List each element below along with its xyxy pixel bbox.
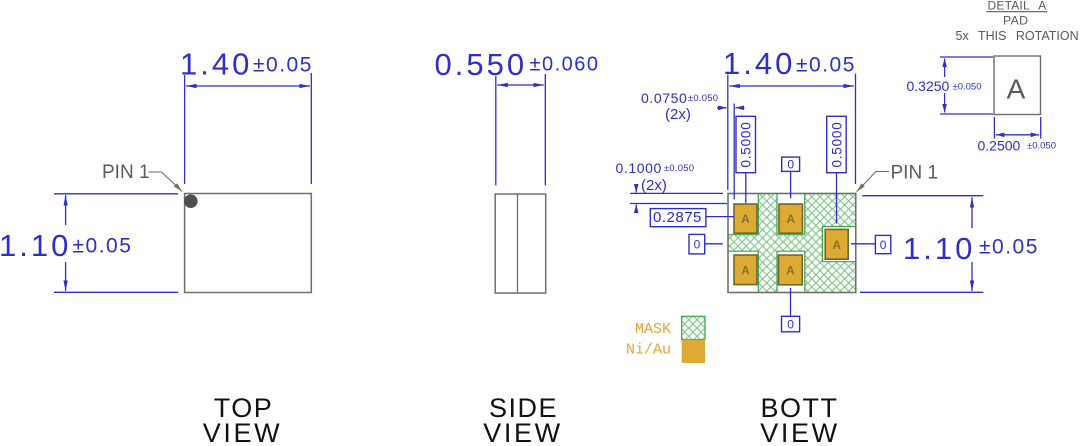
- svg-text:0.3250: 0.3250: [907, 78, 950, 94]
- svg-text:±0.05: ±0.05: [73, 235, 133, 258]
- svg-text:0.2500: 0.2500: [978, 138, 1021, 154]
- svg-text:PIN 1: PIN 1: [891, 163, 939, 184]
- svg-text:PAD: PAD: [1003, 13, 1028, 27]
- svg-text:0: 0: [787, 317, 794, 331]
- svg-text:A: A: [786, 264, 795, 278]
- svg-text:0.5000: 0.5000: [739, 121, 754, 167]
- svg-text:1.10: 1.10: [903, 231, 975, 266]
- svg-text:±0.05: ±0.05: [796, 54, 856, 77]
- svg-text:1.40: 1.40: [723, 46, 795, 81]
- svg-text:MASK: MASK: [635, 321, 671, 338]
- svg-text:5x THIS ROTATION: 5x THIS ROTATION: [956, 29, 1079, 43]
- svg-text:±0.050: ±0.050: [1027, 141, 1056, 152]
- svg-text:Ni/Au: Ni/Au: [626, 342, 671, 359]
- svg-text:0.5000: 0.5000: [829, 121, 844, 167]
- svg-text:A: A: [786, 212, 795, 226]
- svg-text:0: 0: [694, 238, 701, 252]
- svg-text:(2x): (2x): [665, 106, 691, 123]
- svg-text:±0.05: ±0.05: [979, 236, 1039, 259]
- svg-text:0: 0: [787, 158, 794, 172]
- svg-text:0.1000: 0.1000: [616, 160, 662, 176]
- svg-text:0.2875: 0.2875: [653, 209, 702, 226]
- svg-text:0.0750: 0.0750: [641, 90, 687, 106]
- svg-text:1.10: 1.10: [0, 228, 71, 263]
- svg-text:0.550: 0.550: [435, 47, 528, 82]
- svg-text:±0.05: ±0.05: [253, 54, 313, 77]
- svg-text:±0.050: ±0.050: [664, 163, 694, 174]
- svg-text:DETAIL A: DETAIL A: [988, 0, 1047, 13]
- svg-text:±0.060: ±0.060: [530, 54, 600, 76]
- svg-text:A: A: [741, 212, 750, 226]
- svg-text:A: A: [1007, 74, 1026, 105]
- svg-text:±0.050: ±0.050: [688, 93, 718, 104]
- svg-text:1.40: 1.40: [180, 47, 252, 82]
- svg-text:A: A: [832, 238, 841, 252]
- svg-text:±0.050: ±0.050: [953, 82, 982, 93]
- svg-text:VIEW: VIEW: [203, 418, 282, 446]
- svg-text:VIEW: VIEW: [760, 418, 839, 446]
- svg-text:PIN 1: PIN 1: [102, 162, 150, 183]
- svg-text:VIEW: VIEW: [483, 418, 562, 446]
- svg-text:A: A: [741, 263, 750, 277]
- svg-text:0: 0: [880, 238, 887, 252]
- svg-text:(2x): (2x): [641, 177, 667, 194]
